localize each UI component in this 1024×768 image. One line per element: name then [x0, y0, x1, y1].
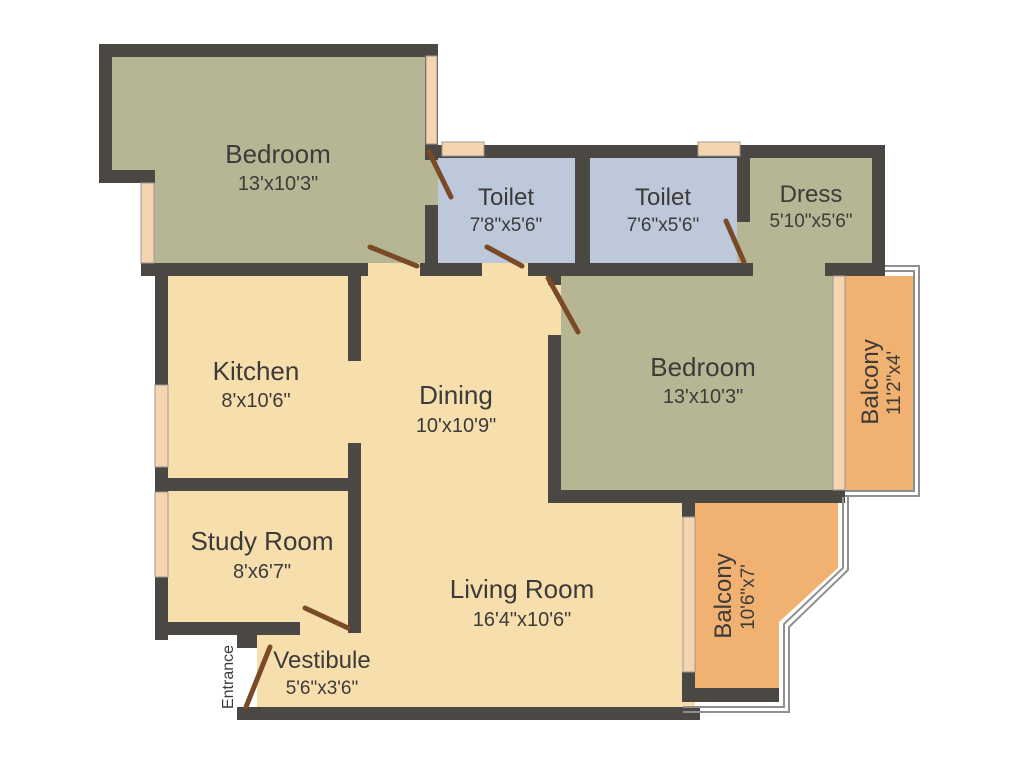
- vestibule-dims: 5'6"x3'6": [286, 678, 359, 699]
- wall: [237, 622, 257, 648]
- window: [155, 385, 168, 467]
- wall: [438, 145, 885, 158]
- toilet-1-dims: 7'8"x5'6": [470, 215, 543, 236]
- toilet-1-label: Toilet: [478, 184, 534, 211]
- wall: [528, 263, 753, 276]
- dress-label: Dress: [780, 181, 843, 208]
- bedroom-2-label: Bedroom: [650, 352, 756, 382]
- toilet-2-dims: 7'6"x5'6": [627, 215, 700, 236]
- dining-dims: 10'x10'9": [416, 415, 496, 437]
- window: [683, 517, 695, 672]
- bedroom-1-label: Bedroom: [225, 139, 331, 169]
- living-room-dims: 16'4"x10'6": [473, 609, 572, 631]
- wall: [737, 145, 750, 222]
- window: [426, 56, 437, 144]
- wall: [99, 44, 112, 183]
- wall: [548, 490, 845, 503]
- bedroom-2-dims: 13'x10'3": [663, 386, 743, 408]
- balcony-1-dims: 11'2"x4': [884, 351, 905, 415]
- dress-passage-floor: [753, 263, 825, 276]
- balcony-2-label: Balcony: [710, 553, 737, 638]
- wall: [99, 170, 155, 183]
- toilet-2-label: Toilet: [635, 184, 691, 211]
- window: [155, 492, 168, 577]
- wall: [141, 263, 368, 276]
- wall: [548, 335, 561, 503]
- wall: [682, 490, 695, 517]
- wall: [237, 707, 700, 720]
- entrance-label: Entrance: [220, 645, 237, 709]
- wall: [99, 44, 438, 57]
- wall: [420, 263, 438, 276]
- balcony-2-dims: 10'6"x7': [738, 564, 759, 630]
- wall: [438, 263, 482, 276]
- wall: [155, 263, 168, 385]
- floor-plan-svg: Bedroom 13'x10'3" Toilet 7'8"x5'6" Toile…: [0, 0, 1024, 768]
- window: [141, 183, 154, 263]
- wall: [155, 478, 361, 491]
- wall: [348, 443, 361, 633]
- window: [442, 142, 484, 156]
- wall: [872, 145, 885, 276]
- study-room-dims: 8'x6'7": [233, 561, 291, 583]
- balcony-1-label: Balcony: [857, 339, 884, 424]
- wall: [575, 145, 590, 276]
- kitchen-label: Kitchen: [213, 356, 300, 386]
- window: [833, 276, 845, 490]
- dress-dims: 5'10"x5'6": [769, 211, 852, 232]
- window: [698, 142, 740, 156]
- bedroom-1-dims: 13'x10'3": [238, 173, 318, 195]
- wall: [682, 688, 779, 702]
- dining-label: Dining: [419, 380, 493, 410]
- vestibule-label: Vestibule: [273, 647, 370, 674]
- kitchen-dims: 8'x10'6": [221, 390, 290, 412]
- wall: [348, 263, 361, 361]
- bedroom-2-floor: [561, 276, 833, 490]
- study-room-label: Study Room: [190, 526, 333, 556]
- wall: [155, 622, 300, 635]
- living-room-label: Living Room: [450, 574, 595, 604]
- floor-plan-canvas: Bedroom 13'x10'3" Toilet 7'8"x5'6" Toile…: [0, 0, 1024, 768]
